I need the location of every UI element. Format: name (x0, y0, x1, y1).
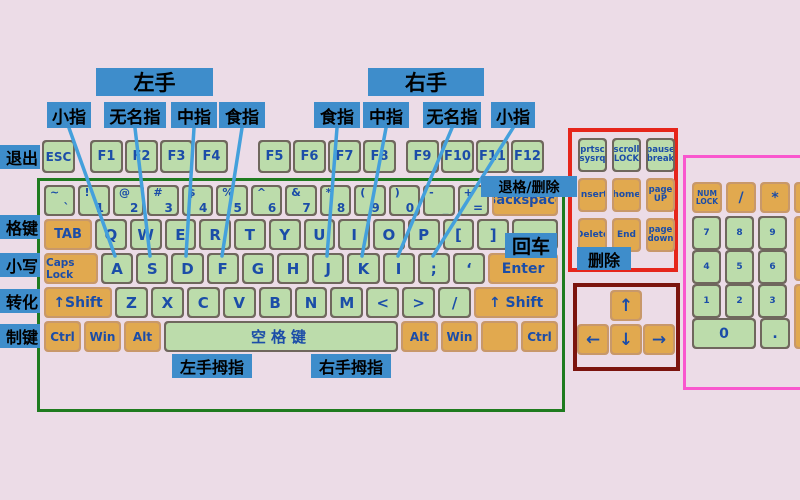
tab-key-label: TAB (54, 227, 82, 242)
capslock-key-label: Caps Lock (46, 257, 96, 281)
nav-row-mid: InserthomepageUP (578, 178, 674, 212)
bottom-row: CtrlWinAlt 空格键 AltWinCtrl (44, 321, 558, 352)
main-keyboard: ~`!1@2#3$4%5^6&7*8(9)0-_+= Backspace TAB… (37, 178, 565, 412)
numpad-multiply-key[interactable]: * (760, 182, 790, 213)
caps-note-label: 小写 (0, 253, 40, 277)
nav-row-top: prtscsysrqscrollLOCKpausebreak (578, 138, 674, 172)
fkeys-group-1: F1F2F3F4 (90, 140, 228, 173)
numpad-zero-key[interactable]: 0 (692, 318, 756, 349)
key-f3[interactable]: F3 (160, 140, 193, 173)
key-1[interactable]: 1 (692, 284, 721, 318)
shift-row: ↑Shift ZXCVBNM<>/ ↑ Shift (44, 287, 558, 318)
key-5[interactable]: 5 (725, 250, 754, 284)
key-5[interactable]: %5 (216, 185, 247, 216)
key-6[interactable]: ^6 (251, 185, 282, 216)
numpad-divide-key[interactable]: / (726, 182, 756, 213)
shift-note-label: 转化 (0, 289, 40, 313)
key-d[interactable]: D (171, 253, 203, 284)
arrow-cluster: ↑ ← ↓ → (573, 283, 680, 371)
key-e[interactable]: E (165, 219, 197, 250)
key-f4[interactable]: F4 (195, 140, 228, 173)
key-j[interactable]: J (312, 253, 344, 284)
key-h[interactable]: H (277, 253, 309, 284)
key-o[interactable]: O (373, 219, 405, 250)
esc-key-label: ESC (46, 150, 72, 164)
key-win[interactable]: Win (84, 321, 121, 352)
home-row: Caps Lock ASDFGHJKI;‘ Enter (44, 253, 558, 284)
key-;[interactable]: ; (418, 253, 450, 284)
key-f8[interactable]: F8 (363, 140, 396, 173)
delete-note-label: 删除 (577, 247, 631, 270)
key-3[interactable]: 3 (758, 284, 787, 318)
key-ctrl[interactable]: Ctrl (44, 321, 81, 352)
key-f[interactable]: F (207, 253, 239, 284)
arrow-left-icon: ← (586, 330, 600, 350)
key-f6[interactable]: F6 (293, 140, 326, 173)
right-hand-label: 右手 (368, 68, 484, 96)
key-f2[interactable]: F2 (125, 140, 158, 173)
key-8[interactable]: *8 (320, 185, 351, 216)
left-shift-key[interactable]: ↑Shift (44, 287, 112, 318)
arrow-left-key[interactable]: ← (577, 324, 609, 355)
left-hand-label: 左手 (96, 68, 213, 96)
key-k[interactable]: K (347, 253, 379, 284)
key-s[interactable]: S (136, 253, 168, 284)
numpad-row-123: 123 (692, 284, 790, 318)
numpad-clipped-key-3[interactable] (794, 284, 800, 349)
key-4[interactable]: $4 (182, 185, 213, 216)
key-f9[interactable]: F9 (406, 140, 439, 173)
numpad-row-789: 789 (692, 216, 790, 250)
key-n[interactable]: N (295, 287, 328, 318)
right-shift-key[interactable]: ↑ Shift (474, 287, 558, 318)
key-2[interactable]: @2 (113, 185, 144, 216)
key-x[interactable]: X (151, 287, 184, 318)
key-insert[interactable]: Insert (578, 178, 607, 212)
key-‘[interactable]: ‘ (453, 253, 485, 284)
key-/[interactable]: / (438, 287, 471, 318)
key-win[interactable]: Win (441, 321, 478, 352)
key-4[interactable]: 4 (692, 250, 721, 284)
esc-key[interactable]: ESC (42, 140, 75, 173)
key-i[interactable]: I (383, 253, 415, 284)
capslock-key[interactable]: Caps Lock (44, 253, 98, 284)
left-middle-label: 中指 (171, 102, 217, 128)
key-alt[interactable]: Alt (401, 321, 438, 352)
left-ring-label: 无名指 (104, 102, 166, 128)
key-w[interactable]: W (130, 219, 162, 250)
numpad-multiply-label: * (771, 190, 778, 206)
key-q[interactable]: Q (95, 219, 127, 250)
key-f10[interactable]: F10 (441, 140, 474, 173)
numpad-clipped-key-2[interactable] (794, 216, 800, 281)
qwerty-row: TAB QWERTYUIOP[] (44, 219, 558, 250)
key-i[interactable]: I (338, 219, 370, 250)
key-f11[interactable]: F11 (476, 140, 509, 173)
key-scroll-lock[interactable]: scrollLOCK (612, 138, 641, 172)
key-p[interactable]: P (408, 219, 440, 250)
backspace-note-label: 退格/删除 (481, 176, 577, 197)
right-index-label: 食指 (314, 102, 360, 128)
key-f12[interactable]: F12 (511, 140, 544, 173)
arrow-down-icon: ↓ (619, 330, 633, 350)
left-index-label: 食指 (219, 102, 265, 128)
arrow-up-key[interactable]: ↑ (610, 290, 642, 321)
arrow-up-icon: ↑ (619, 296, 633, 316)
numpad-zero-label: 0 (719, 326, 729, 342)
esc-note-label: 退出 (0, 145, 40, 169)
key-pause-break[interactable]: pausebreak (646, 138, 675, 172)
numpad-divide-label: / (738, 190, 743, 206)
key-home[interactable]: home (612, 178, 641, 212)
key-1[interactable]: !1 (78, 185, 109, 216)
left-shift-key-label: ↑Shift (53, 295, 102, 311)
arrow-right-key[interactable]: → (643, 324, 675, 355)
key-u[interactable]: U (304, 219, 336, 250)
key-f5[interactable]: F5 (258, 140, 291, 173)
key-ctrl[interactable]: Ctrl (521, 321, 558, 352)
key-alt[interactable]: Alt (124, 321, 161, 352)
key-7[interactable]: &7 (285, 185, 316, 216)
key-_[interactable]: -_ (423, 185, 454, 216)
key-c[interactable]: C (187, 287, 220, 318)
key-8[interactable]: 8 (725, 216, 754, 250)
numpad-row-456: 456 (692, 250, 790, 284)
fkeys-group-3: F9F10F11F12 (406, 140, 544, 173)
key-9[interactable]: (9 (354, 185, 385, 216)
numlock-key[interactable]: NUM LOCK (692, 182, 722, 213)
key-m[interactable]: M (330, 287, 363, 318)
space-key-label: 空格键 (251, 326, 311, 347)
key-y[interactable]: Y (269, 219, 301, 250)
key-7[interactable]: 7 (692, 216, 721, 250)
left-thumb-label: 左手拇指 (172, 354, 252, 378)
key-f7[interactable]: F7 (328, 140, 361, 173)
arrow-right-icon: → (652, 330, 666, 350)
key-f1[interactable]: F1 (90, 140, 123, 173)
keyboard-finger-diagram: 左手 右手 小指 无名指 中指 食指 食指 中指 无名指 小指 退出 格键 小写… (0, 0, 800, 500)
key-v[interactable]: V (223, 287, 256, 318)
numpad-dot-key[interactable]: . (760, 318, 790, 349)
key-page-down[interactable]: pagedown (646, 218, 675, 252)
right-middle-label: 中指 (363, 102, 409, 128)
key-a[interactable]: A (101, 253, 133, 284)
arrow-down-key[interactable]: ↓ (610, 324, 642, 355)
ctrl-note-label: 制键 (0, 324, 40, 348)
key-prtsc-sysrq[interactable]: prtscsysrq (578, 138, 607, 172)
key-r[interactable]: R (199, 219, 231, 250)
fkeys-group-2: F5F6F7F8 (258, 140, 396, 173)
left-pinky-label: 小指 (47, 102, 91, 128)
key-z[interactable]: Z (115, 287, 148, 318)
numpad-dot-label: . (772, 326, 777, 342)
key-6[interactable]: 6 (758, 250, 787, 284)
key-t[interactable]: T (234, 219, 266, 250)
key->[interactable]: > (402, 287, 435, 318)
key-page-up[interactable]: pageUP (646, 178, 675, 212)
enter-note-label: 回车 (505, 233, 557, 258)
key-`[interactable]: ~` (44, 185, 75, 216)
numpad-clipped-key-1[interactable] (794, 182, 800, 213)
tab-key[interactable]: TAB (44, 219, 92, 250)
enter-key-label: Enter (502, 261, 545, 277)
right-shift-key-label: ↑ Shift (489, 295, 543, 311)
numlock-key-label2: LOCK (696, 198, 718, 206)
tab-note-label: 格键 (0, 215, 40, 239)
key-blank[interactable] (481, 321, 518, 352)
key-b[interactable]: B (259, 287, 292, 318)
key-0[interactable]: )0 (389, 185, 420, 216)
key-<[interactable]: < (366, 287, 399, 318)
key-[[interactable]: [ (443, 219, 475, 250)
key-2[interactable]: 2 (725, 284, 754, 318)
numpad: NUM LOCK / * 789 456 123 0 . (683, 155, 800, 390)
space-key[interactable]: 空格键 (164, 321, 398, 352)
right-ring-label: 无名指 (423, 102, 481, 128)
right-pinky-label: 小指 (491, 102, 535, 128)
key-3[interactable]: #3 (147, 185, 178, 216)
right-thumb-label: 右手拇指 (311, 354, 391, 378)
key-g[interactable]: G (242, 253, 274, 284)
key-9[interactable]: 9 (758, 216, 787, 250)
